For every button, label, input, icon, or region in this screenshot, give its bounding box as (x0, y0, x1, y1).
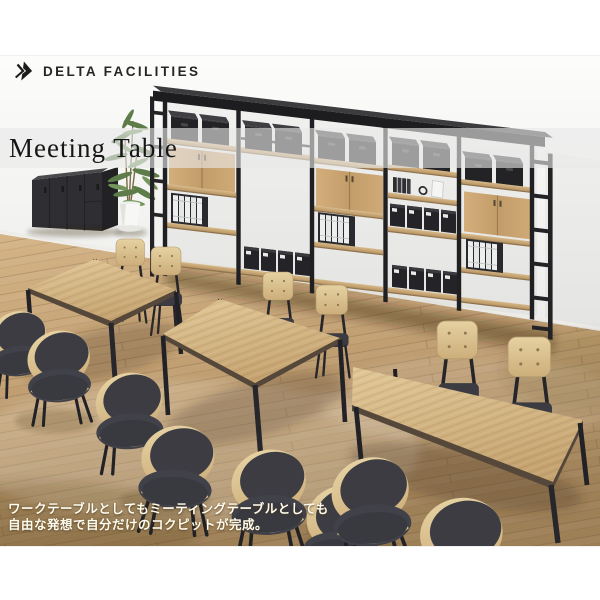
caption: ワークテーブルとしてもミーティングテーブルとしても 自由な発想で自分だけのコクピ… (8, 501, 329, 533)
double-chevron-right-icon (14, 61, 34, 81)
page-title: Meeting Table (0, 133, 178, 164)
page-root: DELTA FACILITIES Meeting Table ワークテーブルとし… (0, 0, 600, 600)
caption-line-1: ワークテーブルとしてもミーティングテーブルとしても (8, 501, 329, 517)
brand-logo: DELTA FACILITIES (14, 61, 200, 81)
caption-line-2: 自由な発想で自分だけのコクピットが完成。 (8, 517, 329, 533)
storage-cabinet (27, 167, 123, 237)
brand-text: DELTA FACILITIES (43, 64, 200, 79)
title-banner: Meeting Table (0, 128, 600, 168)
